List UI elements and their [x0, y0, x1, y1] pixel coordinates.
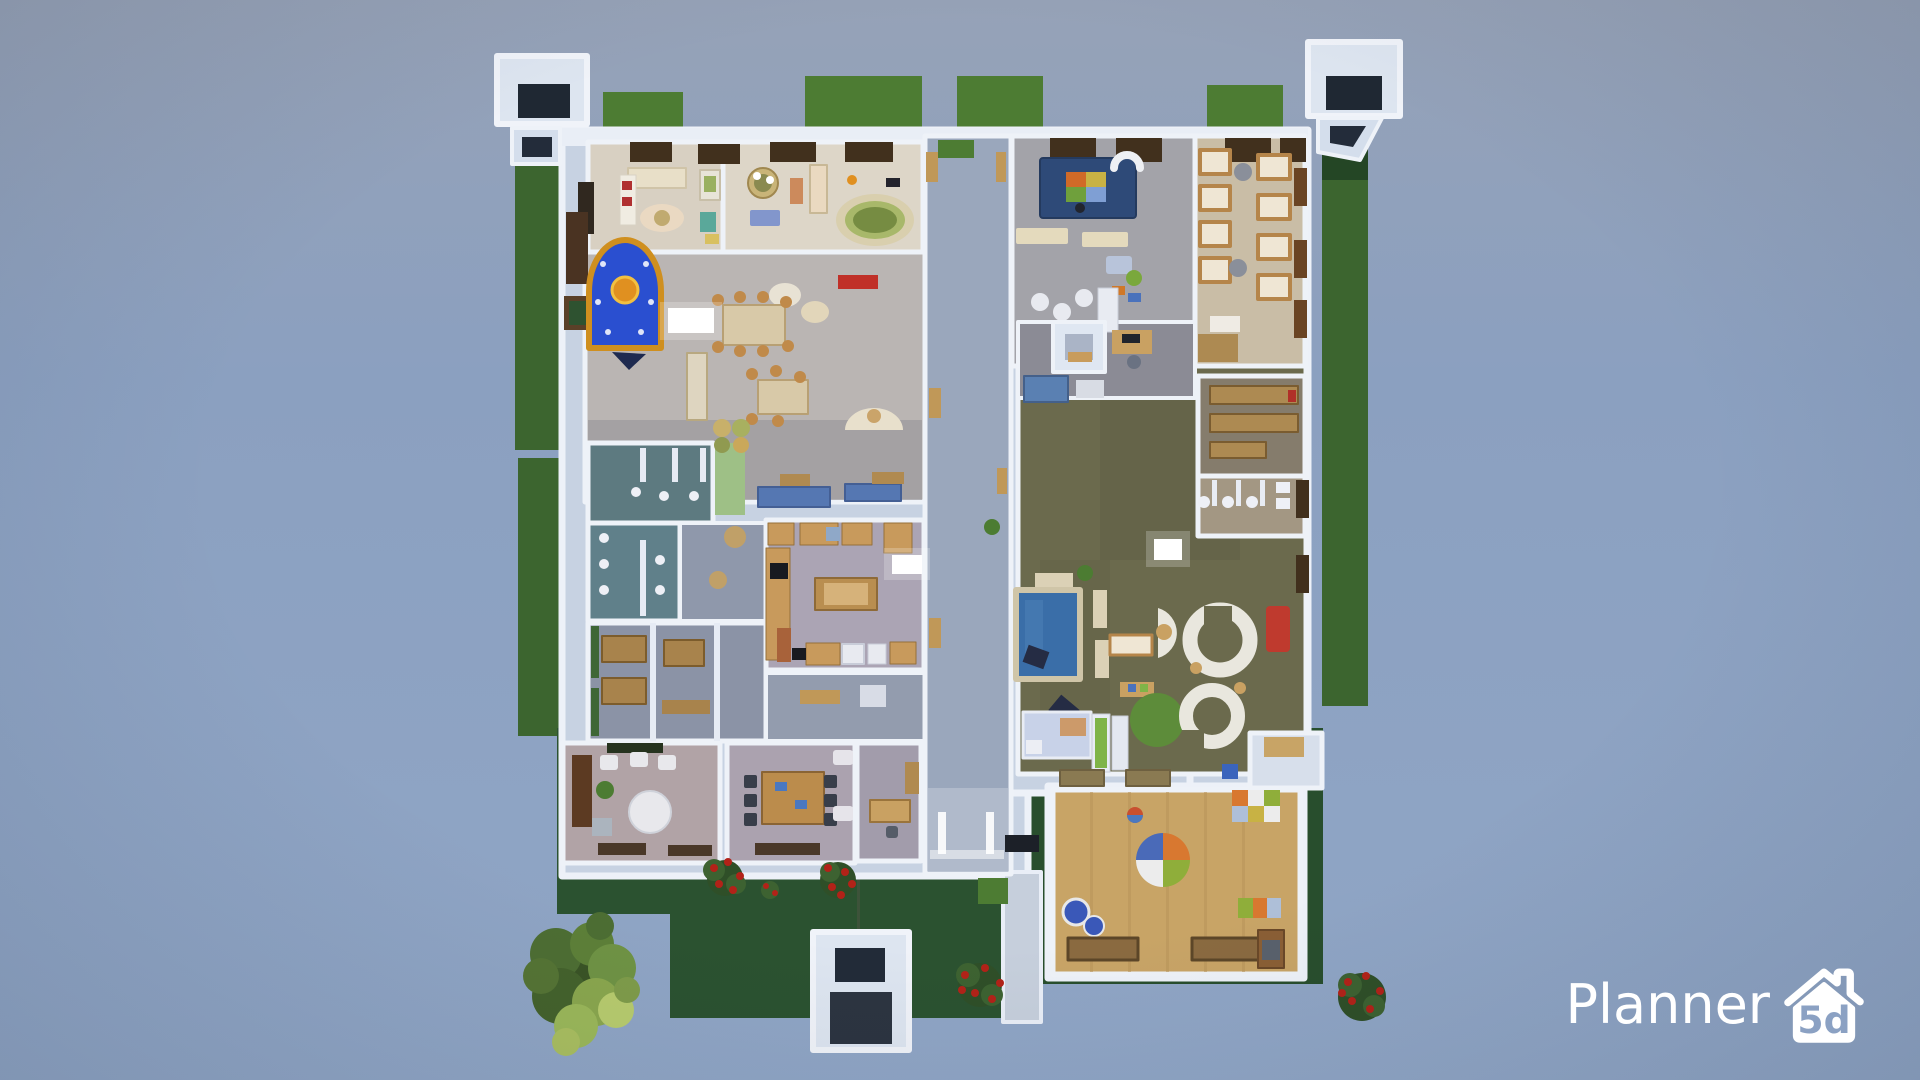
bush-berry	[996, 979, 1004, 987]
logo-badge-text: 5d	[1797, 998, 1850, 1042]
hall-pouf	[724, 526, 746, 548]
kitchen-sink	[826, 527, 840, 541]
kids-chair	[794, 371, 806, 383]
office-chair	[886, 826, 898, 838]
bush-berry	[981, 964, 989, 972]
dining-chair	[658, 755, 676, 770]
window-east	[1296, 480, 1309, 518]
kids-chair	[712, 341, 724, 353]
corridor-lightspill	[930, 850, 1004, 859]
wc-partition	[1260, 480, 1265, 506]
kids-table-b	[758, 380, 808, 414]
crib	[1200, 222, 1230, 246]
corridor-mat-green	[938, 140, 974, 158]
meeting-paper	[775, 782, 787, 791]
fridge	[842, 644, 864, 664]
bush-berry	[958, 986, 966, 994]
play-fridge-red	[622, 181, 632, 190]
cloak-green-wall	[591, 688, 599, 736]
gym-mat	[1060, 770, 1104, 786]
cribs-wardrobe	[1198, 334, 1238, 362]
corridor-doorlight	[986, 812, 994, 854]
gym-console	[1024, 376, 1068, 402]
stall-wall	[640, 448, 646, 482]
kids-chair	[770, 365, 782, 377]
vestibule-bench	[1068, 352, 1092, 362]
bush-berry	[763, 883, 769, 889]
low-cabinet	[780, 474, 810, 486]
ceiling-light	[892, 555, 922, 574]
gym-blue-cube	[1222, 764, 1238, 779]
toy-ring	[732, 419, 750, 437]
chimney-left-opening	[518, 84, 570, 118]
wc-sink	[1276, 498, 1290, 509]
gym-bench-v	[1093, 590, 1107, 628]
porch-roof-opening	[835, 948, 885, 982]
meeting-chair	[744, 813, 757, 826]
toy-shelf-item	[1128, 684, 1136, 692]
crib	[1258, 155, 1290, 179]
bush-green	[761, 881, 779, 899]
sofa-cream	[1082, 232, 1128, 247]
cloak-partition	[714, 623, 720, 741]
rug-color-quad	[1066, 172, 1086, 187]
floor-mat-dark	[598, 843, 646, 855]
bush-berry	[1338, 989, 1346, 997]
kitchen-cab-south	[890, 642, 916, 664]
window-east	[1296, 555, 1309, 593]
annex-pouf-square	[1264, 790, 1280, 806]
rug-color-quad	[1086, 172, 1106, 187]
meeting-chair	[744, 794, 757, 807]
yellow-mat	[705, 234, 719, 244]
room-hall-south	[766, 673, 928, 741]
cooktop	[770, 563, 788, 579]
tree-foliage	[552, 1028, 580, 1056]
gym-stool	[1190, 662, 1202, 674]
strip-monitor	[1122, 334, 1140, 343]
corridor-exit-mat	[978, 878, 1008, 904]
planner5d-render-viewport: Planner 5d	[0, 0, 1920, 1080]
chair-white	[1053, 303, 1071, 321]
cloak-partition	[650, 623, 656, 741]
gym-half-disc-seat	[1156, 624, 1172, 640]
bush-berry	[961, 971, 969, 979]
crib	[1258, 195, 1290, 219]
green-wall-kitchen	[715, 443, 745, 515]
hall-pouf	[709, 571, 727, 589]
kitchen-cab-south	[868, 644, 886, 664]
strip-chair	[1127, 355, 1141, 369]
ceiling-light	[668, 308, 714, 333]
meeting-chair	[744, 775, 757, 788]
gym-bench-v	[1095, 640, 1109, 678]
dining-round-table	[629, 791, 671, 833]
meeting-paper	[795, 800, 807, 809]
window-east	[1294, 240, 1307, 278]
bench-blue	[758, 487, 830, 507]
kids-chair	[780, 296, 792, 308]
store-shelf	[1210, 442, 1266, 458]
skylight-window	[770, 142, 816, 162]
toilet	[659, 491, 669, 501]
gym-red-bench	[1266, 606, 1290, 652]
corridor-doormat	[1005, 835, 1039, 852]
corridor-bench	[997, 468, 1007, 494]
chair-white	[1031, 293, 1049, 311]
toilet	[631, 487, 641, 497]
towel-roll	[753, 172, 761, 180]
bush-berry	[824, 864, 832, 872]
bush-berry	[1362, 972, 1370, 980]
cribs-armchair	[1229, 259, 1247, 277]
play-kitchen	[628, 168, 686, 188]
kitchen-island-top	[824, 583, 868, 605]
chimney-left-sub-opening	[522, 137, 552, 157]
kids-chair	[782, 340, 794, 352]
gym-crib	[1110, 635, 1152, 655]
sun-rug-fleck	[638, 329, 644, 335]
bush-berry	[971, 989, 979, 997]
crib	[1200, 258, 1230, 282]
store-red-box	[1288, 390, 1296, 402]
bath-cabinet	[810, 165, 827, 213]
sink-round	[655, 555, 665, 565]
pillow	[1106, 256, 1132, 274]
orange-cabinet	[777, 628, 791, 662]
wc-sink	[1276, 482, 1290, 493]
gym-bed-pillow	[1026, 740, 1042, 754]
low-cabinet	[872, 472, 904, 484]
bush-berry	[724, 858, 732, 866]
bush-berry	[772, 890, 778, 896]
bush-berry	[1348, 997, 1356, 1005]
white-cabinet	[1112, 716, 1128, 770]
annex-rug-square	[1238, 898, 1253, 918]
gym-mat	[1126, 770, 1170, 786]
dining-window	[572, 755, 592, 827]
corridor-bench	[929, 388, 941, 418]
play-fridge-red	[622, 197, 632, 206]
toilet	[1246, 496, 1258, 508]
annex-rug-square	[1253, 898, 1267, 918]
toilet	[1222, 496, 1234, 508]
tree-foliage	[523, 958, 559, 994]
office-shelf	[905, 762, 919, 794]
towel-roll	[766, 176, 774, 184]
lawn-left-lower	[518, 458, 562, 736]
sun-rug-sun	[612, 277, 638, 303]
sun-rug-fleck	[595, 299, 601, 305]
kids-basket	[654, 210, 670, 226]
cubby-bench	[602, 636, 646, 662]
annex-pouf-square	[1232, 790, 1248, 806]
kids-chair	[734, 345, 746, 357]
rug-color-quad	[1086, 187, 1106, 202]
tablet-toy	[886, 178, 900, 187]
bush-berry	[710, 864, 718, 872]
crib	[1258, 235, 1290, 259]
paper-blue	[1128, 293, 1141, 302]
gym-ring-cut	[1182, 730, 1204, 752]
annex-mat	[1192, 938, 1260, 960]
glass-box	[592, 818, 612, 836]
cribs-armchair	[1234, 163, 1252, 181]
porch-entry-shadow	[830, 992, 892, 1044]
kids-chair	[746, 368, 758, 380]
nook-mat	[1264, 737, 1304, 757]
kids-chair	[772, 415, 784, 427]
stall-wall	[672, 448, 678, 482]
sun-rug-fleck	[605, 329, 611, 335]
rug-color-quad	[1066, 187, 1086, 202]
bush-berry	[729, 886, 737, 894]
kids-chair	[757, 291, 769, 303]
logo-house-badge-icon: 5d	[1783, 964, 1865, 1046]
hall-bench	[800, 690, 840, 704]
toilet	[689, 491, 699, 501]
sun-rug-fleck	[600, 261, 606, 267]
bush-berry	[837, 891, 845, 899]
cloak-green-wall	[591, 626, 599, 678]
tree-foliage	[586, 912, 614, 940]
cubby-bench	[602, 678, 646, 704]
window-east	[1294, 300, 1307, 338]
bush-berry	[1376, 987, 1384, 995]
corridor-bench	[996, 152, 1006, 182]
tall-cabinet	[687, 353, 707, 420]
pouf-green	[1126, 270, 1142, 286]
kitchen-counter	[842, 523, 872, 545]
crib	[1200, 150, 1230, 174]
gym-green-rug	[1130, 693, 1184, 747]
sun-rug-fleck	[648, 299, 654, 305]
skylight-window	[630, 142, 672, 162]
bush-berry	[828, 883, 836, 891]
stall-wall	[700, 448, 706, 482]
floor-mat-dark	[755, 843, 820, 855]
toilet	[599, 559, 609, 569]
armchair	[801, 301, 829, 323]
meeting-chair	[824, 775, 837, 788]
gym-paper	[1076, 380, 1104, 398]
gym-bench-top	[1035, 573, 1073, 587]
gym-stool	[1234, 682, 1246, 694]
gym-ring-cut	[1204, 606, 1232, 626]
corridor-bench	[926, 152, 938, 182]
planner5d-logo: Planner 5d	[1565, 964, 1865, 1046]
kitchen-counter	[768, 523, 794, 545]
wc-partition	[1236, 480, 1241, 506]
annex-pouf-square	[1248, 806, 1264, 822]
toilet	[1198, 496, 1210, 508]
room-mid-hall	[680, 523, 766, 621]
black-appliance	[792, 648, 806, 660]
floor-mat-dark	[668, 845, 712, 856]
annex-cabinet-front	[1262, 940, 1280, 960]
bench-blue	[845, 484, 901, 501]
gym-bed-tray	[1060, 718, 1086, 736]
corridor	[925, 136, 1011, 874]
chimney-right-opening	[1326, 76, 1382, 110]
sun-rug-fleck	[643, 261, 649, 267]
bush-berry	[848, 880, 856, 888]
skylight-window	[698, 144, 740, 164]
dark-toy	[1075, 203, 1085, 213]
crib	[1258, 275, 1290, 299]
kitchen-cab-south	[806, 643, 840, 665]
annex-pouf-square	[1232, 806, 1248, 822]
walkway	[1003, 872, 1041, 1022]
bath-sofa	[750, 210, 780, 226]
tree-foliage	[614, 977, 640, 1003]
dining-chair	[630, 752, 648, 767]
cubby-bench	[664, 640, 704, 666]
toy-ring	[713, 419, 731, 437]
annex-mat	[1068, 938, 1138, 960]
ceiling-light	[1154, 539, 1182, 560]
red-table	[838, 275, 878, 289]
bush-green	[1363, 995, 1385, 1017]
annex-rug-square	[1267, 898, 1281, 918]
dining-shelf	[607, 743, 663, 753]
chair-white	[1075, 289, 1093, 307]
corridor-plant	[984, 519, 1000, 535]
bush-berry	[715, 880, 723, 888]
cribs-light	[1210, 316, 1240, 332]
meeting-chair	[824, 794, 837, 807]
room-toilets-upper	[588, 443, 713, 523]
store-shelf	[1210, 414, 1298, 432]
towel-ladder	[790, 178, 803, 204]
bush-berry	[736, 872, 744, 880]
stall-wall	[640, 540, 646, 616]
skylight-window	[845, 142, 893, 162]
cubby-bench	[662, 700, 710, 714]
toy-ring	[733, 437, 749, 453]
green-cabinet-front	[1095, 718, 1107, 768]
toilet	[599, 533, 609, 543]
meeting-table	[762, 772, 824, 824]
toilet	[599, 585, 609, 595]
window-east	[1294, 168, 1307, 206]
gym-plant	[1077, 565, 1093, 581]
wc-partition	[1212, 480, 1217, 506]
annex-pouf-square	[1248, 790, 1264, 806]
store-shelf	[1210, 386, 1298, 404]
office-desk	[870, 800, 910, 822]
blue-ball	[1084, 916, 1104, 936]
fan-desk-stool	[867, 409, 881, 423]
kids-chair	[757, 345, 769, 357]
toy-cone	[847, 175, 857, 185]
baby-pool-water	[853, 207, 897, 233]
meeting-armchair	[833, 806, 853, 821]
crib-blanket	[704, 176, 716, 192]
bush-berry	[988, 995, 996, 1003]
kids-table-a	[723, 305, 785, 345]
lawn-right-strip	[1322, 180, 1368, 706]
dining-plant	[596, 781, 614, 799]
sofa-cream	[1016, 228, 1068, 244]
meeting-armchair	[833, 750, 853, 765]
kids-chair	[734, 291, 746, 303]
dining-chair	[600, 755, 618, 770]
teal-towel	[700, 212, 716, 232]
logo-wordmark: Planner	[1565, 978, 1770, 1032]
corridor-bench	[929, 618, 941, 648]
bush-berry	[1344, 978, 1352, 986]
annex-pouf-square	[1264, 806, 1280, 822]
frame-west-a	[566, 212, 588, 284]
corridor-doorlight	[938, 812, 946, 854]
scene-svg	[0, 0, 1920, 1080]
toy-ring	[714, 437, 730, 453]
bush-berry	[1366, 1005, 1374, 1013]
bush-berry	[841, 868, 849, 876]
sink-round	[655, 585, 665, 595]
toy-shelf-item	[1140, 684, 1148, 692]
crib	[1200, 186, 1230, 210]
hall-box	[860, 685, 886, 707]
